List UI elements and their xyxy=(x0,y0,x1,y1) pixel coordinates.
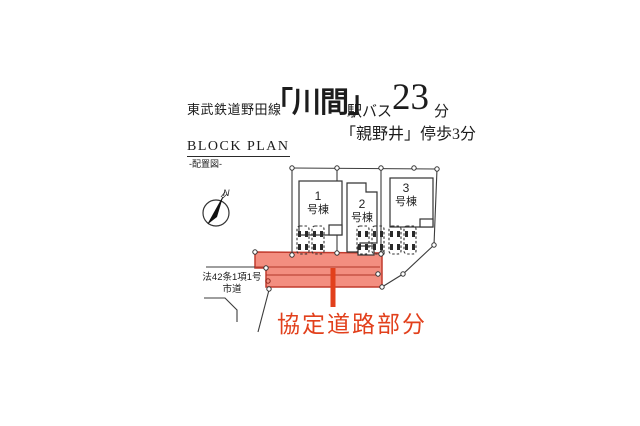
agreement-road-area xyxy=(255,252,382,287)
building-2-number: 2 xyxy=(359,197,366,211)
north-compass-icon: N xyxy=(203,188,230,226)
building-2-label: 号棟 xyxy=(351,210,373,224)
page-root: { "header": { "railway_line": "東武鉄道野田線",… xyxy=(0,0,640,426)
building-1-label: 号棟 xyxy=(307,202,329,216)
compass-north-label: N xyxy=(223,188,230,198)
site-plan: 1 号棟 2 号棟 3 号棟 xyxy=(0,0,640,426)
building-3-label: 号棟 xyxy=(395,194,417,208)
building-3-number: 3 xyxy=(403,181,410,195)
building-1-number: 1 xyxy=(315,189,322,203)
